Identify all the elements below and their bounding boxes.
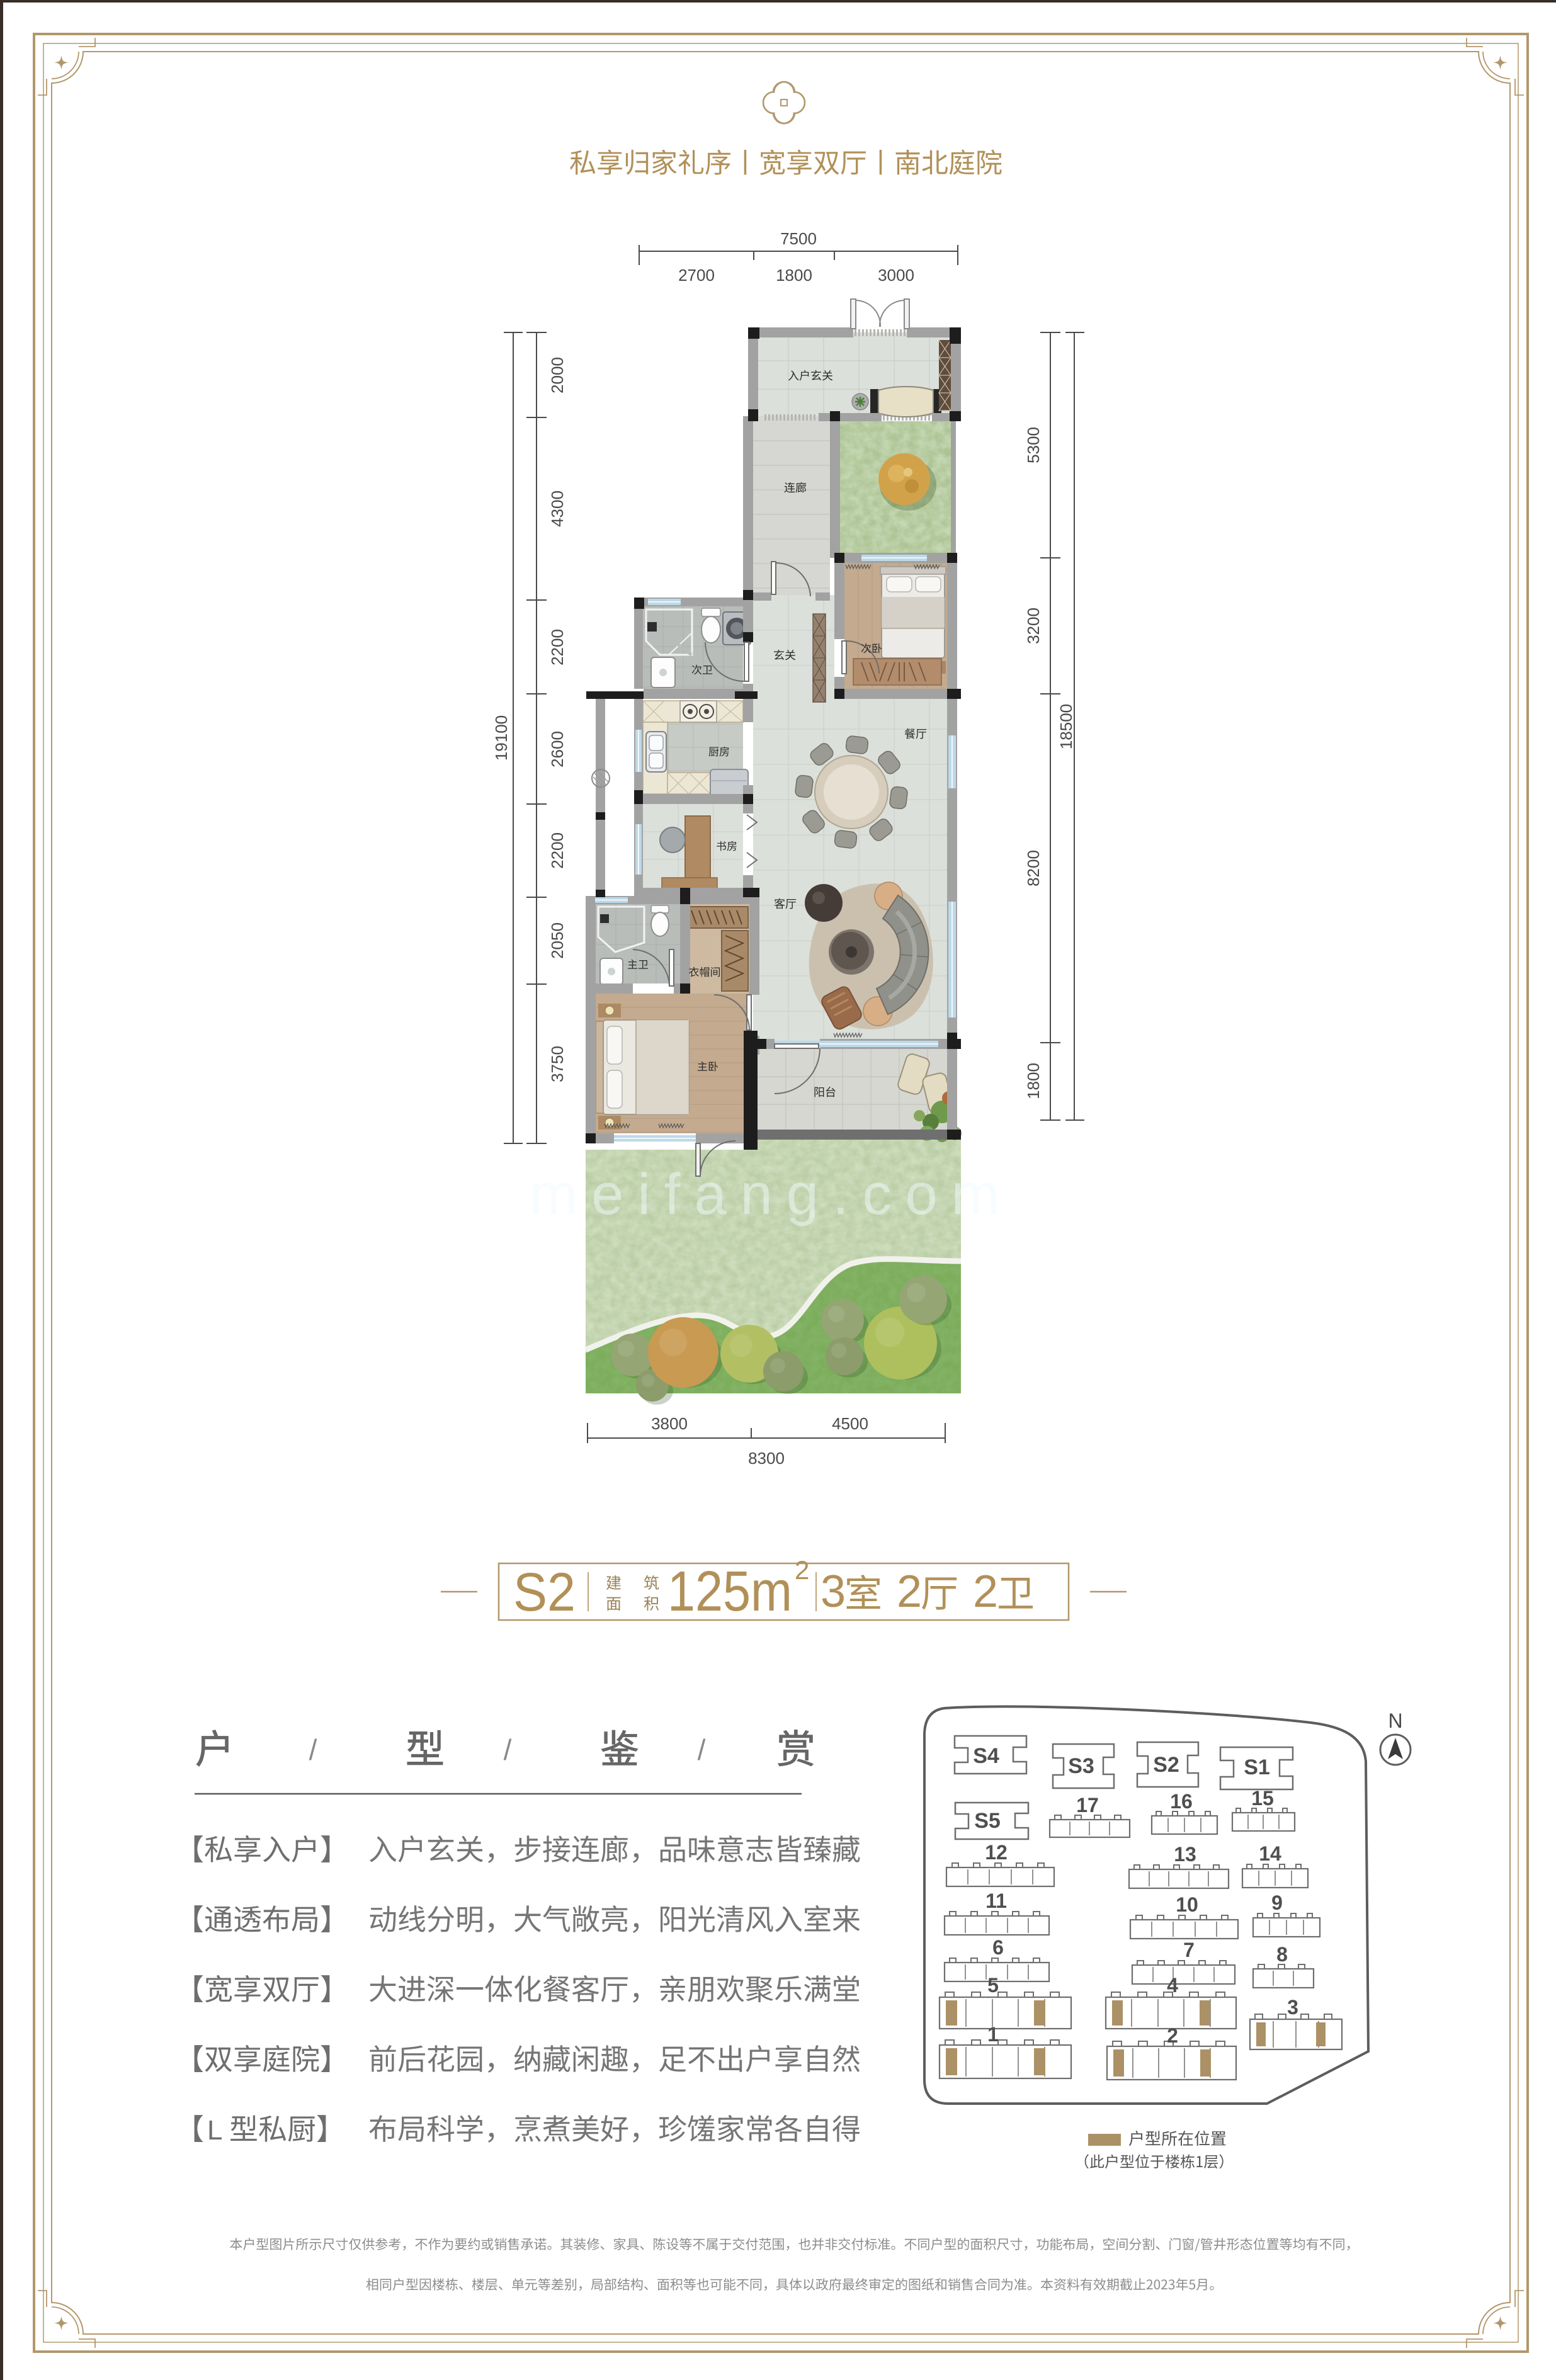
svg-text:L: L [207,2115,222,2146]
svg-text:/: / [309,1733,317,1766]
svg-text:9: 9 [1271,1891,1283,1914]
svg-text:S5: S5 [974,1809,1001,1833]
svg-text:7: 7 [1183,1939,1195,1961]
svg-text:2000: 2000 [548,357,567,394]
svg-text:S2: S2 [1153,1753,1179,1777]
svg-text:14: 14 [1259,1842,1281,1865]
svg-text:S3: S3 [1068,1754,1094,1778]
svg-text:19100: 19100 [492,715,511,761]
svg-text:S1: S1 [1244,1755,1270,1779]
svg-text:10: 10 [1176,1893,1198,1916]
svg-text:11: 11 [985,1890,1007,1912]
svg-text:5300: 5300 [1024,427,1043,463]
svg-text:/: / [698,1733,706,1766]
svg-text:125m: 125m [667,1560,792,1623]
svg-text:18500: 18500 [1057,704,1076,749]
svg-text:5: 5 [987,1974,999,1997]
svg-text:4500: 4500 [832,1414,868,1433]
svg-text:13: 13 [1174,1843,1196,1866]
svg-text:8: 8 [1276,1943,1288,1966]
svg-text:2: 2 [795,1555,809,1585]
svg-text:2: 2 [1167,2024,1178,2047]
svg-text:3000: 3000 [878,266,914,285]
svg-text:meifang.com: meifang.com [530,1162,1014,1227]
svg-text:17: 17 [1076,1794,1099,1816]
svg-text:3: 3 [821,1567,846,1617]
svg-text:12: 12 [985,1841,1008,1864]
svg-text:2: 2 [973,1567,998,1617]
svg-text:8200: 8200 [1024,850,1043,887]
svg-text:2600: 2600 [548,731,567,768]
svg-text:3750: 3750 [548,1046,567,1082]
svg-text:2700: 2700 [678,266,715,285]
svg-text:1800: 1800 [1024,1063,1043,1099]
svg-text:8300: 8300 [748,1449,785,1468]
svg-text:7500: 7500 [780,229,817,248]
svg-text:2200: 2200 [548,629,567,666]
svg-text:S4: S4 [973,1744,999,1768]
svg-text:1: 1 [987,2023,999,2046]
svg-text:3: 3 [1287,1996,1298,2019]
svg-text:4: 4 [1167,1974,1178,1997]
svg-text:2050: 2050 [548,922,567,959]
svg-text:N: N [1388,1709,1402,1732]
svg-text:6: 6 [992,1936,1004,1959]
svg-text:S2: S2 [513,1562,576,1623]
svg-text:1800: 1800 [776,266,812,285]
svg-text:4300: 4300 [548,490,567,527]
svg-text:3200: 3200 [1024,608,1043,644]
svg-text:3800: 3800 [651,1414,688,1433]
svg-text:/: / [504,1733,512,1766]
svg-text:2200: 2200 [548,832,567,869]
svg-text:2: 2 [897,1567,922,1617]
svg-text:15: 15 [1251,1787,1274,1810]
svg-text:16: 16 [1170,1790,1193,1813]
